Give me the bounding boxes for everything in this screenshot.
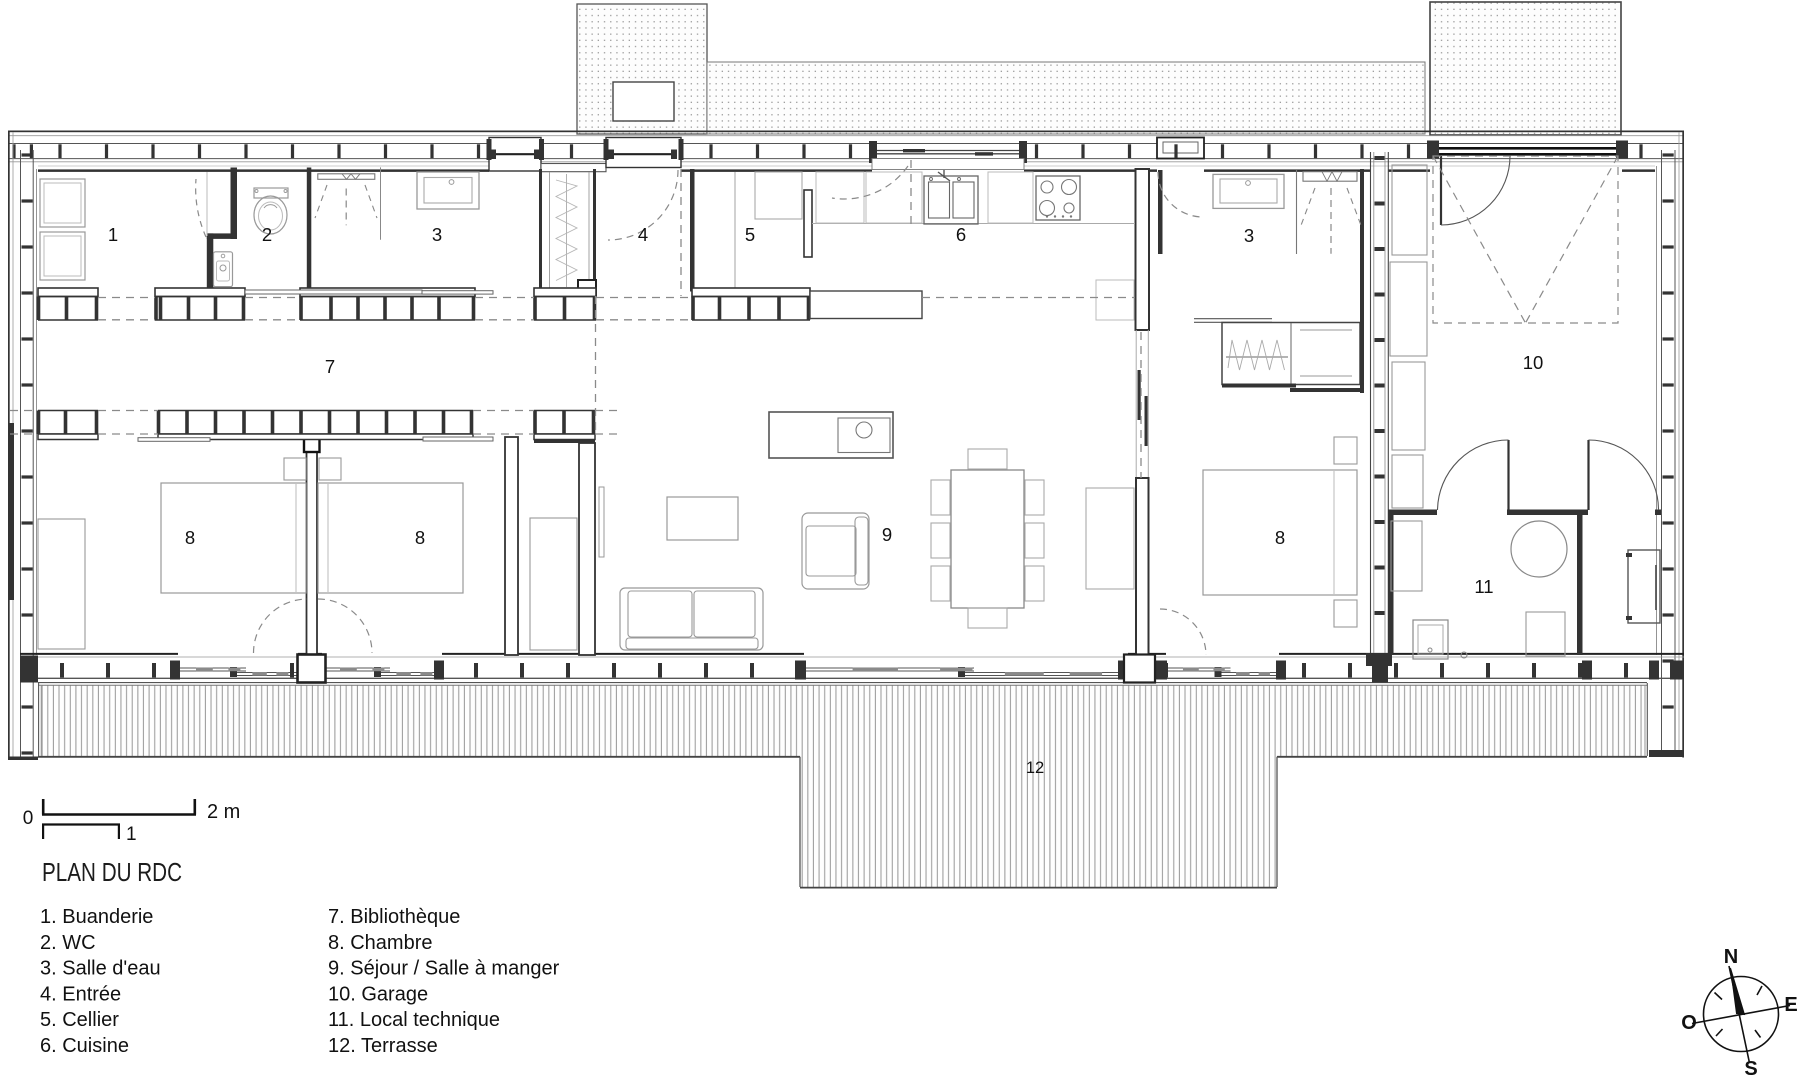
svg-text:3: 3	[1244, 225, 1254, 246]
svg-text:O: O	[1681, 1012, 1697, 1034]
svg-text:S: S	[1744, 1058, 1757, 1077]
svg-text:7. Bibliothèque: 7. Bibliothèque	[328, 906, 460, 928]
svg-text:11. Local technique: 11. Local technique	[328, 1009, 500, 1031]
svg-text:3. Salle d'eau: 3. Salle d'eau	[40, 958, 161, 980]
svg-text:8. Chambre: 8. Chambre	[328, 932, 433, 954]
svg-text:8: 8	[185, 527, 195, 548]
svg-text:5: 5	[745, 224, 755, 245]
svg-text:10. Garage: 10. Garage	[328, 983, 428, 1005]
svg-text:1: 1	[108, 224, 118, 245]
svg-text:2. WC: 2. WC	[40, 932, 96, 954]
svg-text:11: 11	[1474, 576, 1493, 597]
svg-text:5. Cellier: 5. Cellier	[40, 1009, 119, 1031]
svg-text:PLAN DU RDC: PLAN DU RDC	[42, 857, 182, 887]
svg-text:7: 7	[325, 356, 335, 377]
svg-text:3: 3	[432, 224, 442, 245]
svg-text:9. Séjour / Salle à manger: 9. Séjour / Salle à manger	[328, 958, 560, 980]
svg-text:2: 2	[262, 224, 272, 245]
svg-text:1: 1	[126, 824, 137, 845]
svg-text:0: 0	[23, 808, 34, 829]
svg-text:8: 8	[415, 527, 425, 548]
svg-text:9: 9	[882, 524, 892, 545]
svg-text:12. Terrasse: 12. Terrasse	[328, 1035, 438, 1057]
svg-text:12: 12	[1026, 759, 1044, 777]
svg-text:2 m: 2 m	[207, 801, 240, 823]
svg-text:8: 8	[1275, 527, 1285, 548]
svg-text:10: 10	[1523, 352, 1544, 373]
svg-text:4: 4	[638, 224, 648, 245]
svg-text:6: 6	[956, 224, 966, 245]
svg-text:6. Cuisine: 6. Cuisine	[40, 1035, 129, 1057]
svg-text:1. Buanderie: 1. Buanderie	[40, 906, 153, 928]
svg-text:N: N	[1724, 946, 1738, 968]
svg-text:4. Entrée: 4. Entrée	[40, 983, 121, 1005]
svg-text:E: E	[1784, 994, 1797, 1016]
